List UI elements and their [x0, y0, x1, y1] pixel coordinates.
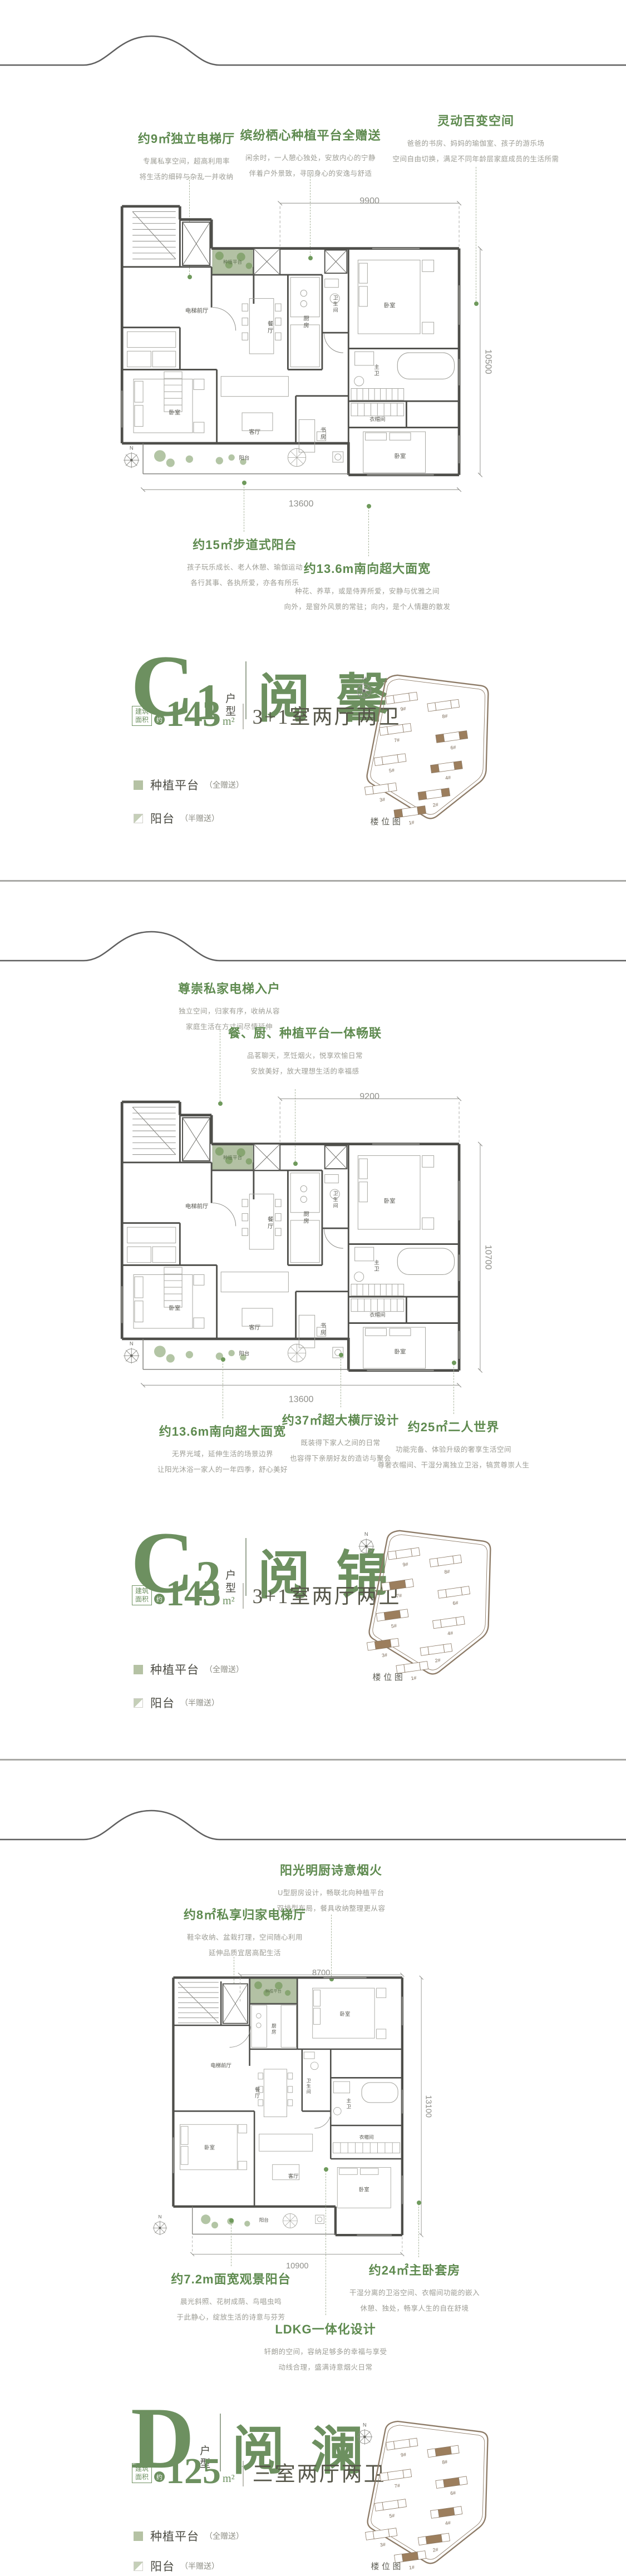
area-value: 143	[166, 1579, 221, 1609]
site-building-label: 3#	[379, 2542, 386, 2548]
room-label-bedroom_a: 卧室	[384, 302, 396, 309]
site-building: 5#	[374, 2499, 408, 2521]
compass-icon: N	[158, 2214, 161, 2219]
room-label-bedroom_a: 卧室	[340, 2011, 351, 2017]
site-building-label: 1#	[411, 1675, 417, 1681]
annotation-line: 让阳光沐浴一家人的一年四季，舒心美好	[157, 1462, 288, 1477]
site-plan-caption: 楼位图	[373, 1673, 406, 1682]
annotation-title: 约7.2m面宽观景阳台	[171, 2270, 290, 2287]
site-building: 7#	[382, 1579, 415, 1600]
area-unit: m²	[223, 2473, 235, 2485]
area-value: 125	[166, 2456, 221, 2486]
room-label-platform: 种植平台	[223, 259, 242, 265]
annotation-title: 阳光明厨诗意烟火	[277, 1861, 385, 1878]
site-building-label: 8#	[442, 713, 448, 719]
area-box-text: 建筑	[135, 1587, 149, 1595]
leader-dot	[324, 2167, 328, 2172]
annotation-line: 安放美好，放大理想生活的幸福感	[228, 1064, 382, 1079]
balcony-swatch-icon	[134, 2562, 143, 2571]
dimension-top: 9200	[359, 1091, 379, 1101]
site-building-label: 5#	[389, 2513, 395, 2519]
annotation-line: 晨光斜照、花树成荫、鸟唱虫鸣	[171, 2294, 290, 2310]
room-label-master_bath: 主卫	[373, 1259, 379, 1272]
room-label-balcony: 阳台	[239, 454, 249, 461]
annotation: 约7.2m面宽观景阳台 晨光斜照、花树成荫、鸟唱虫鸣 于此静心，绽放生活的诗意与…	[171, 2270, 290, 2325]
leader-line	[454, 1364, 454, 1414]
site-building-label: 1#	[408, 819, 415, 825]
annotation: LDKG一体化设计 轩朗的空间，容纳足够多的幸福与享受 动线合理，盛满诗意烟火日…	[264, 2320, 387, 2375]
area-box-text: 面积	[135, 2473, 149, 2481]
room-label-master_bath: 主卫	[346, 2098, 352, 2110]
legend-note: （全赠送）	[205, 2530, 244, 2542]
dimension-bottom: 13600	[289, 1395, 314, 1405]
floor-plan: 87001310010900N电梯前厅种植平台厨房餐厅卫生间卧室主卫衣帽间客厅卧…	[145, 1968, 479, 2283]
site-building-label: 9#	[400, 706, 406, 712]
legend-item: 种植平台 （全赠送）	[134, 2528, 244, 2544]
site-building-label: 9#	[402, 1561, 408, 1568]
dimension-top: 9900	[359, 196, 379, 206]
annotation: 约13.6m南向超大面宽 种花、养草，或是侍弄所爱，安静与优雅之间 向外，是窗外…	[284, 559, 450, 615]
site-building: 8#	[427, 2445, 461, 2467]
site-building-label: 4#	[445, 2520, 451, 2526]
leader-dot	[417, 2201, 421, 2205]
site-building: 4#	[433, 1616, 466, 1638]
leader-line	[244, 484, 244, 532]
annotation-title: 约13.6m南向超大面宽	[284, 559, 450, 577]
legend-note: （半赠送）	[180, 1697, 219, 1708]
room-label-closet: 衣帽间	[359, 2134, 374, 2140]
annotation-line: 功能完备、体验升级的奢享生活空间	[377, 1442, 529, 1457]
site-building-label: 7#	[394, 737, 400, 743]
site-building-label: 5#	[391, 1623, 397, 1629]
leader-line	[326, 2170, 326, 2315]
room-label-dining: 餐厅	[267, 1216, 273, 1230]
annotation-title: 约8㎡私享归家电梯厅	[184, 1905, 306, 1923]
balcony-swatch-icon	[134, 814, 143, 823]
balcony-swatch-icon	[134, 1698, 143, 1708]
room-label-bath: 卫生间	[333, 1191, 338, 1209]
room-label-balcony: 阳台	[259, 2217, 269, 2223]
room-label-bedroom_c: 卧室	[395, 452, 406, 459]
room-label-kitchen: 厨房	[271, 2023, 277, 2035]
annotation-line: 鞋伞收纳、盆栽打理，空间随心利用	[184, 1930, 306, 1945]
compass-icon: N	[130, 1341, 134, 1347]
room-label-dining: 餐厅	[267, 320, 273, 334]
annotation-line: 闲余时，一人憩心独处，安放内心的宁静	[240, 150, 381, 166]
leader-dot	[452, 1361, 456, 1365]
room-label-hall: 电梯前厅	[210, 2062, 231, 2068]
annotation-title: 尊崇私家电梯入户	[178, 979, 280, 997]
site-building: 9#	[386, 692, 419, 714]
room-label-closet: 衣帽间	[369, 416, 385, 423]
room-label-study: 书房	[319, 427, 326, 441]
annotation: 灵动百变空间 爸爸的书房、妈妈的瑜伽室、孩子的游乐场 空间自由切换，满足不同年龄…	[392, 111, 559, 167]
area-box: 建筑面积	[132, 706, 152, 726]
room-label-closet: 衣帽间	[369, 1312, 385, 1318]
area-box-text: 建筑	[135, 2465, 149, 2473]
site-building: 5#	[374, 754, 407, 775]
annotation-title: 灵动百变空间	[392, 111, 559, 129]
room-label-bedroom_b: 卧室	[169, 1304, 180, 1312]
annotation-line: 延伸品质宜居高配生活	[184, 1945, 306, 1961]
annotation: 餐、厨、种植平台一体畅联 品茗聊天，烹饪烟火，悦享欢愉日常 安放美好，放大理想生…	[228, 1024, 382, 1079]
room-label-living: 客厅	[249, 1324, 260, 1331]
room-label-bath: 卫生间	[333, 295, 338, 314]
compass-icon: N	[130, 445, 134, 451]
leader-line	[231, 2222, 231, 2266]
site-building: 9#	[386, 2438, 420, 2460]
approx-badge: 约	[154, 2471, 165, 2482]
planting-platform-swatch-icon	[134, 780, 143, 790]
divider-bar	[243, 2461, 244, 2486]
leader-line	[220, 1030, 220, 1101]
legend-label: 阳台	[150, 810, 175, 827]
wave-divider	[0, 1805, 626, 1850]
area-row: 建筑面积 约 125 m² 三室两厅两卫	[132, 2456, 386, 2486]
site-building-label: 3#	[379, 797, 385, 803]
annotation: 约8㎡私享归家电梯厅 鞋伞收纳、盆栽打理，空间随心利用 延伸品质宜居高配生活	[184, 1905, 306, 1961]
leader-line	[341, 1356, 341, 1407]
site-plan-map: N9#8#7#6#5#4#3#2#1#楼位图	[349, 2414, 516, 2574]
area-box: 建筑面积	[132, 2463, 152, 2483]
annotation-title: 约25㎡二人世界	[377, 1417, 529, 1435]
site-building-label: 6#	[450, 744, 456, 750]
wave-divider	[0, 31, 626, 75]
site-building: 6#	[436, 731, 469, 753]
annotation-title: 约9㎡独立电梯厅	[138, 129, 235, 147]
section-divider	[0, 1759, 626, 1761]
dimension-right: 10500	[483, 349, 493, 374]
annotation-title: 约13.6m南向超大面宽	[157, 1422, 288, 1440]
annotation-line: 干湿分离的卫浴空间、衣帽间功能的嵌入	[349, 2285, 480, 2301]
annotation-title: 缤纷栖心种植平台全赠送	[240, 126, 381, 144]
room-label-platform: 种植平台	[265, 1989, 282, 1994]
area-box-text: 面积	[135, 1595, 149, 1604]
site-building: 3#	[367, 1638, 400, 1660]
site-building-label: 6#	[452, 1600, 459, 1606]
leader-dot	[339, 1353, 343, 1357]
annotation-line: 种花、养草，或是侍弄所爱，安静与优雅之间	[284, 584, 450, 599]
site-building-label: 6#	[450, 2490, 456, 2496]
site-building: 7#	[379, 723, 413, 745]
site-building-label: 9#	[400, 2451, 406, 2458]
leader-line	[368, 507, 369, 556]
compass-icon: N	[362, 676, 366, 681]
room-label-living: 客厅	[249, 428, 260, 436]
room-label-balcony: 阳台	[239, 1350, 249, 1357]
annotation-title: 约24㎡主卧套房	[349, 2261, 480, 2278]
site-plan-caption: 楼位图	[371, 2562, 404, 2572]
site-building-label: 2#	[432, 802, 438, 808]
site-building-label: 1#	[408, 2564, 415, 2570]
site-building: 4#	[431, 761, 464, 783]
annotation: 缤纷栖心种植平台全赠送 闲余时，一人憩心独处，安放内心的宁静 伴着户外景致，寻回…	[240, 126, 381, 181]
site-building: 8#	[427, 699, 461, 721]
area-box-text: 建筑	[135, 708, 149, 716]
site-building-label: 2#	[435, 1657, 441, 1663]
legend-note: （半赠送）	[180, 813, 219, 824]
site-building: 6#	[438, 1586, 471, 1608]
site-building-label: 8#	[444, 1569, 450, 1575]
room-label-bedroom_b: 卧室	[204, 2144, 215, 2150]
annotation: 约9㎡独立电梯厅 专属私享空间，超高利用率 将生活的细碎与杂乱一并收纳	[138, 129, 235, 185]
annotation-line: U型厨房设计，畅联北向种植平台	[277, 1885, 385, 1901]
divider-bar	[243, 1583, 244, 1609]
annotation-title: 约15㎡步道式阳台	[187, 535, 303, 553]
legend-label: 种植平台	[150, 777, 199, 793]
annotation-line: 休憩、独处，畅享人生的自在舒境	[349, 2301, 480, 2316]
annotation-line: 动线合理，盛满诗意烟火日常	[264, 2360, 387, 2375]
approx-badge: 约	[154, 714, 165, 725]
dimension-right: 13100	[424, 2095, 433, 2118]
area-unit: m²	[223, 715, 235, 728]
area-value: 143	[166, 699, 221, 729]
planting-platform-swatch-icon	[134, 1665, 143, 1674]
annotation-line: 伴着户外景致，寻回身心的安逸与舒适	[240, 166, 381, 181]
site-plan-caption: 楼位图	[371, 817, 403, 827]
legend-item: 阳台 （半赠送）	[134, 1694, 219, 1711]
compass-icon: N	[364, 1531, 368, 1537]
site-building: 4#	[431, 2506, 464, 2528]
site-building: 6#	[436, 2476, 469, 2498]
room-label-bedroom_c: 卧室	[359, 2186, 369, 2192]
section-divider	[0, 880, 626, 882]
legend-label: 种植平台	[150, 1661, 199, 1678]
site-building-label: 7#	[396, 1593, 402, 1599]
legend-note: （全赠送）	[205, 1664, 244, 1675]
room-label-living: 客厅	[288, 2173, 299, 2179]
annotation-line: 尊奢衣帽间、干湿分离独立卫浴，犒赏尊崇人生	[377, 1457, 529, 1473]
site-building-label: 2#	[432, 2547, 438, 2553]
room-label-hall: 电梯前厅	[185, 307, 209, 314]
legend-item: 阳台 （半赠送）	[134, 2558, 219, 2574]
room-label-dining: 餐厅	[254, 2086, 260, 2099]
annotation-line: 独立空间，归家有序，收纳从容	[178, 1003, 280, 1019]
site-building-label: 4#	[445, 774, 451, 780]
room-label-kitchen: 厨房	[302, 1211, 309, 1225]
annotation-line: 无界光域，延伸生活的场景边界	[157, 1446, 288, 1462]
approx-badge: 约	[154, 1594, 165, 1604]
leader-dot	[242, 481, 247, 485]
leader-line	[223, 1361, 223, 1418]
site-building: 5#	[376, 1609, 410, 1631]
room-label-platform: 种植平台	[223, 1155, 242, 1160]
room-label-bath: 卫生间	[306, 2078, 311, 2095]
room-label-study: 书房	[319, 1323, 326, 1337]
legend-label: 种植平台	[150, 2528, 199, 2544]
annotation-title: LDKG一体化设计	[264, 2320, 387, 2337]
floor-plan: 92001070013600N电梯前厅种植平台餐厅厨房卫生间卧室主卫衣帽间书房客…	[111, 1091, 512, 1407]
site-plan-map: N9#8#7#6#5#4#3#2#1#楼位图	[352, 1523, 519, 1685]
dimension-right: 10700	[483, 1245, 493, 1270]
site-building-label: 3#	[381, 1652, 387, 1658]
annotation-line: 将生活的细碎与杂乱一并收纳	[138, 169, 235, 185]
site-building-label: 4#	[447, 1630, 453, 1636]
room-label-bedroom_b: 卧室	[169, 409, 180, 416]
site-building: 3#	[364, 783, 398, 804]
site-plan-map: N9#8#7#6#5#4#3#2#1#楼位图	[349, 668, 516, 830]
site-building-label: 8#	[442, 2459, 448, 2465]
room-label-master_bath: 主卫	[373, 364, 379, 377]
annotation-line: 专属私享空间，超高利用率	[138, 154, 235, 169]
room-label-bedroom_c: 卧室	[395, 1348, 406, 1355]
area-unit: m²	[223, 1595, 235, 1608]
annotation-line: 爸爸的书房、妈妈的瑜伽室、孩子的游乐场	[392, 136, 559, 151]
site-building: 8#	[430, 1555, 463, 1576]
room-label-bedroom_a: 卧室	[384, 1198, 396, 1205]
compass-icon: N	[363, 2422, 367, 2427]
annotation-title: 餐、厨、种植平台一体畅联	[228, 1024, 382, 1041]
legend-item: 阳台 （半赠送）	[134, 810, 219, 827]
annotation-line: 轩朗的空间，容纳足够多的幸福与享受	[264, 2344, 387, 2360]
annotation: 约24㎡主卧套房 干湿分离的卫浴空间、衣帽间功能的嵌入 休憩、独处，畅享人生的自…	[349, 2261, 480, 2316]
leader-dot	[229, 2218, 234, 2223]
area-box-text: 面积	[135, 716, 149, 724]
site-building-label: 5#	[388, 767, 395, 773]
page: 约9㎡独立电梯厅 专属私享空间，超高利用率 将生活的细碎与杂乱一并收纳 缤纷栖心…	[0, 0, 626, 2576]
divider-bar	[243, 704, 244, 729]
legend-label: 阳台	[150, 1694, 175, 1711]
dimension-bottom: 13600	[289, 499, 314, 509]
legend-item: 种植平台 （全赠送）	[134, 777, 244, 793]
area-box: 建筑面积	[132, 1585, 152, 1605]
planting-platform-swatch-icon	[134, 2531, 143, 2541]
leader-dot	[221, 1357, 225, 1362]
annotation-line: 品茗聊天，烹饪烟火，悦享欢愉日常	[228, 1048, 382, 1064]
annotation-line: 空间自由切换，满足不同年龄层家庭成员的生活所需	[392, 151, 559, 167]
legend-note: （全赠送）	[205, 779, 244, 790]
site-building: 7#	[380, 2469, 413, 2491]
legend-note: （半赠送）	[180, 2560, 219, 2572]
annotation: 约13.6m南向超大面宽 无界光域，延伸生活的场景边界 让阳光沐浴一家人的一年四…	[157, 1422, 288, 1477]
legend-item: 种植平台 （全赠送）	[134, 1661, 244, 1678]
legend-label: 阳台	[150, 2558, 175, 2574]
room-label-hall: 电梯前厅	[185, 1203, 209, 1210]
dimension-top: 8700	[312, 1969, 330, 1977]
site-building: 3#	[366, 2528, 399, 2550]
wave-divider	[0, 926, 626, 971]
leader-line	[418, 2204, 419, 2257]
annotation-line: 向外，是窗外风景的常驻；向内，是个人情趣的散发	[284, 599, 450, 615]
leader-dot	[367, 504, 371, 508]
annotation: 约25㎡二人世界 功能完备、体验升级的奢享生活空间 尊奢衣帽间、干湿分离独立卫浴…	[377, 1417, 529, 1473]
site-building-label: 7#	[394, 2483, 400, 2489]
floor-plan: 99001050013600N电梯前厅种植平台餐厅厨房卫生间卧室主卫衣帽间书房客…	[111, 196, 512, 512]
site-building: 9#	[388, 1547, 421, 1569]
room-label-kitchen: 厨房	[302, 315, 309, 329]
